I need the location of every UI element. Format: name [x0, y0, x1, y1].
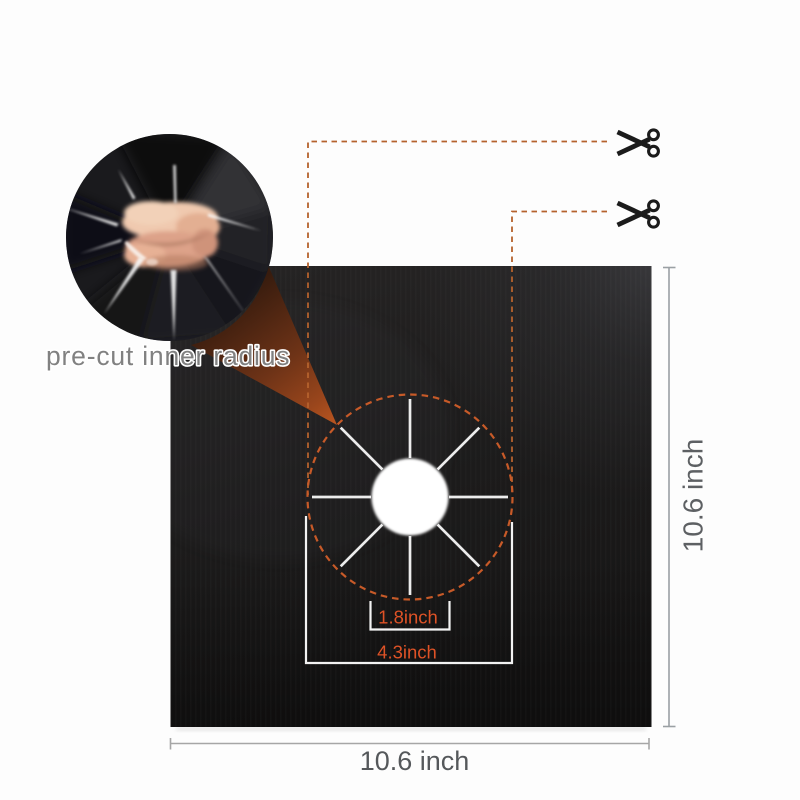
svg-text:1.8inch: 1.8inch — [378, 607, 438, 628]
svg-text:10.6 inch: 10.6 inch — [360, 746, 470, 776]
svg-text:10.6 inch: 10.6 inch — [678, 439, 709, 553]
svg-text:pre-cut inner radius: pre-cut inner radius — [46, 341, 290, 371]
svg-text:4.3inch: 4.3inch — [377, 642, 437, 663]
